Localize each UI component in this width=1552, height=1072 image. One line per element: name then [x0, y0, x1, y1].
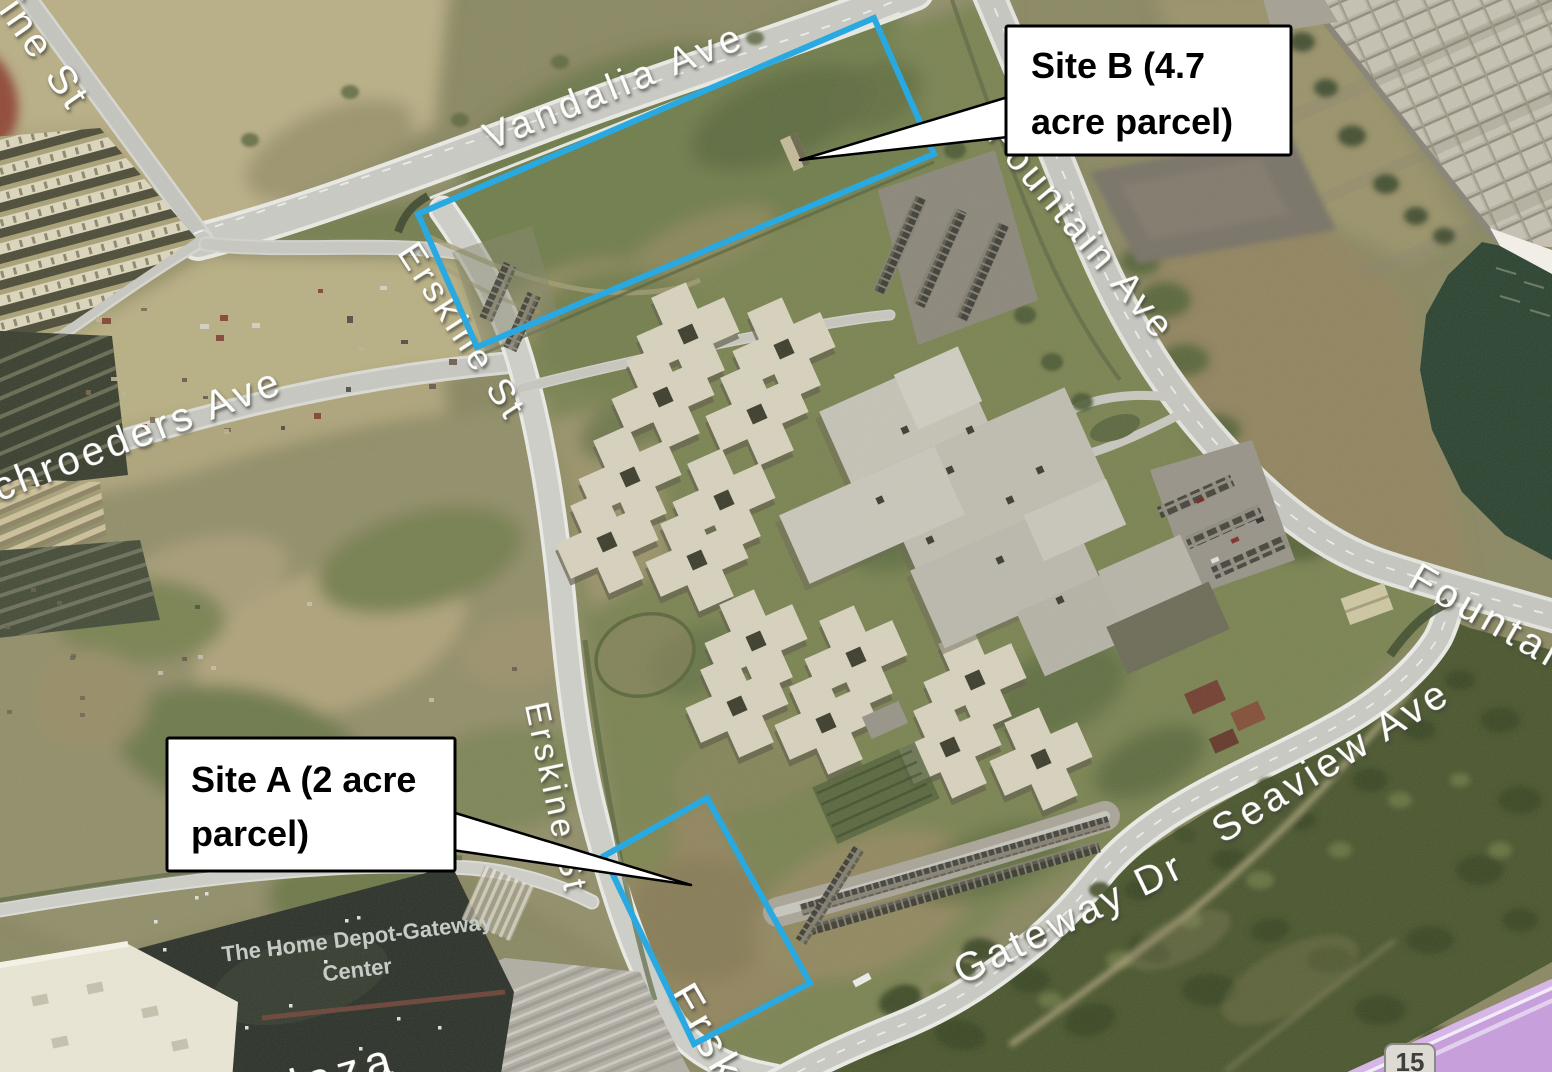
svg-text:Site B (4.7: Site B (4.7	[1031, 45, 1205, 86]
svg-text:parcel): parcel)	[191, 813, 309, 854]
svg-text:Site A (2 acre: Site A (2 acre	[191, 759, 416, 800]
svg-text:acre parcel): acre parcel)	[1031, 101, 1233, 142]
svg-text:15: 15	[1396, 1047, 1425, 1072]
